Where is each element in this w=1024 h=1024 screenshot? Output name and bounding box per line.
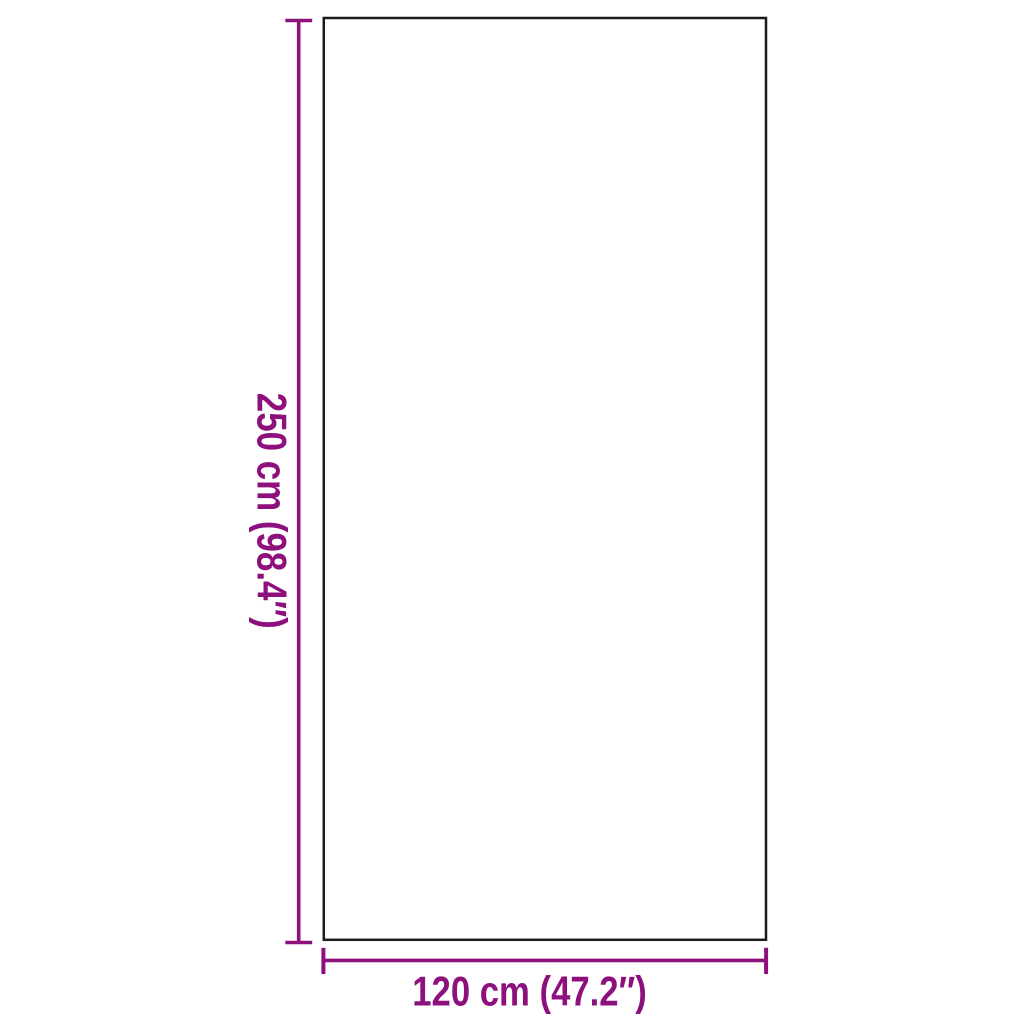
svg-text:250 cm (98.4″): 250 cm (98.4″) [249,393,296,629]
svg-text:120 cm (47.2″): 120 cm (47.2″) [412,968,647,1015]
